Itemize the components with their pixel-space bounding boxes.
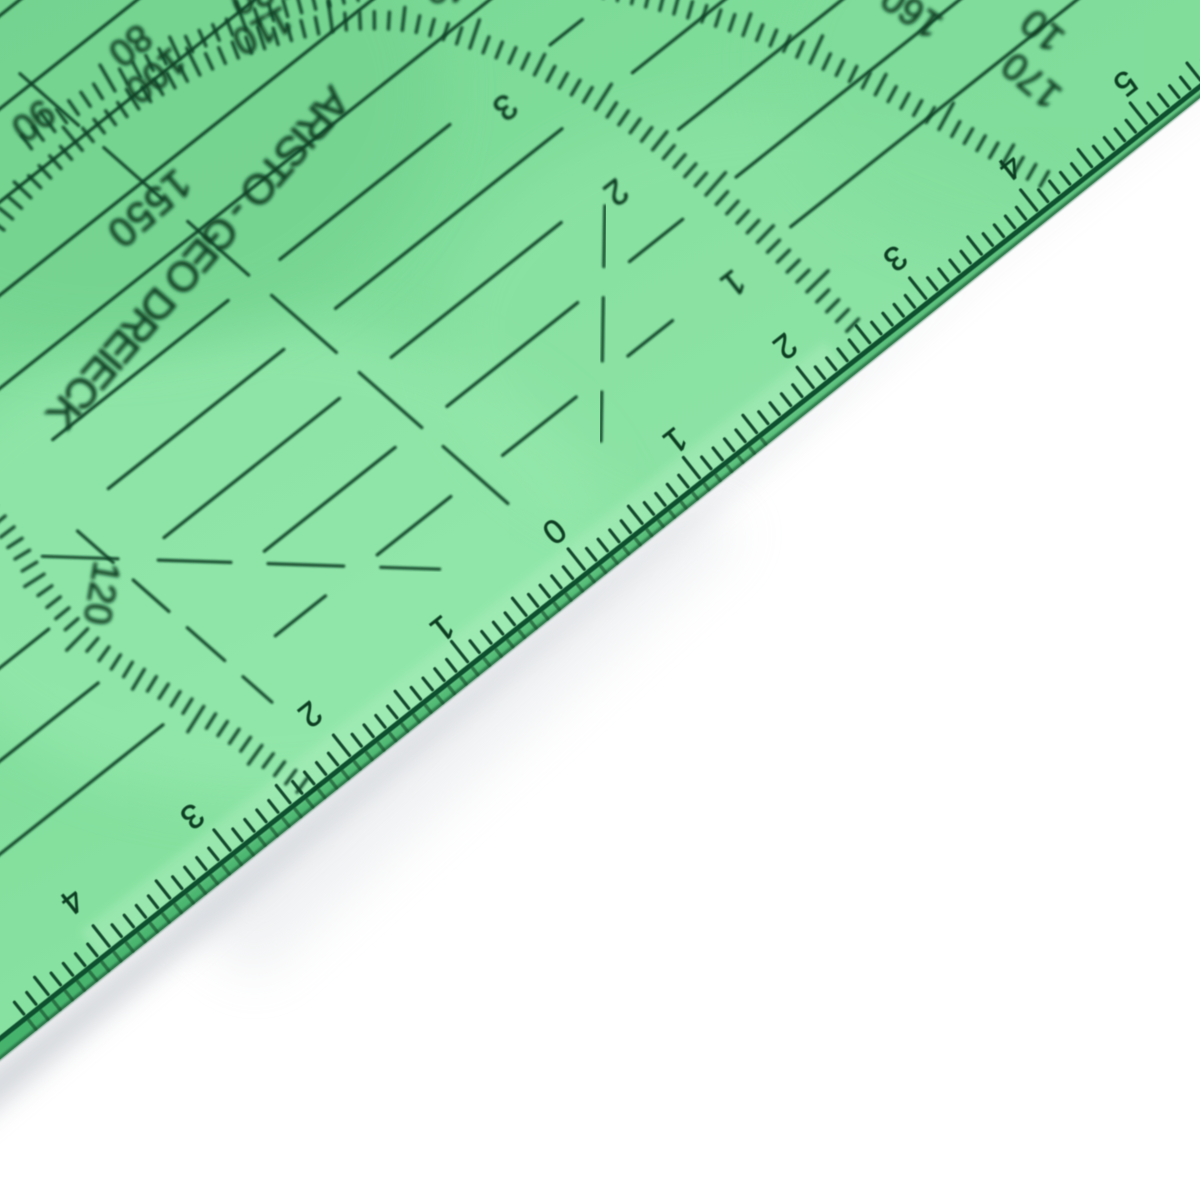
svg-text:40: 40 (426, 0, 470, 10)
